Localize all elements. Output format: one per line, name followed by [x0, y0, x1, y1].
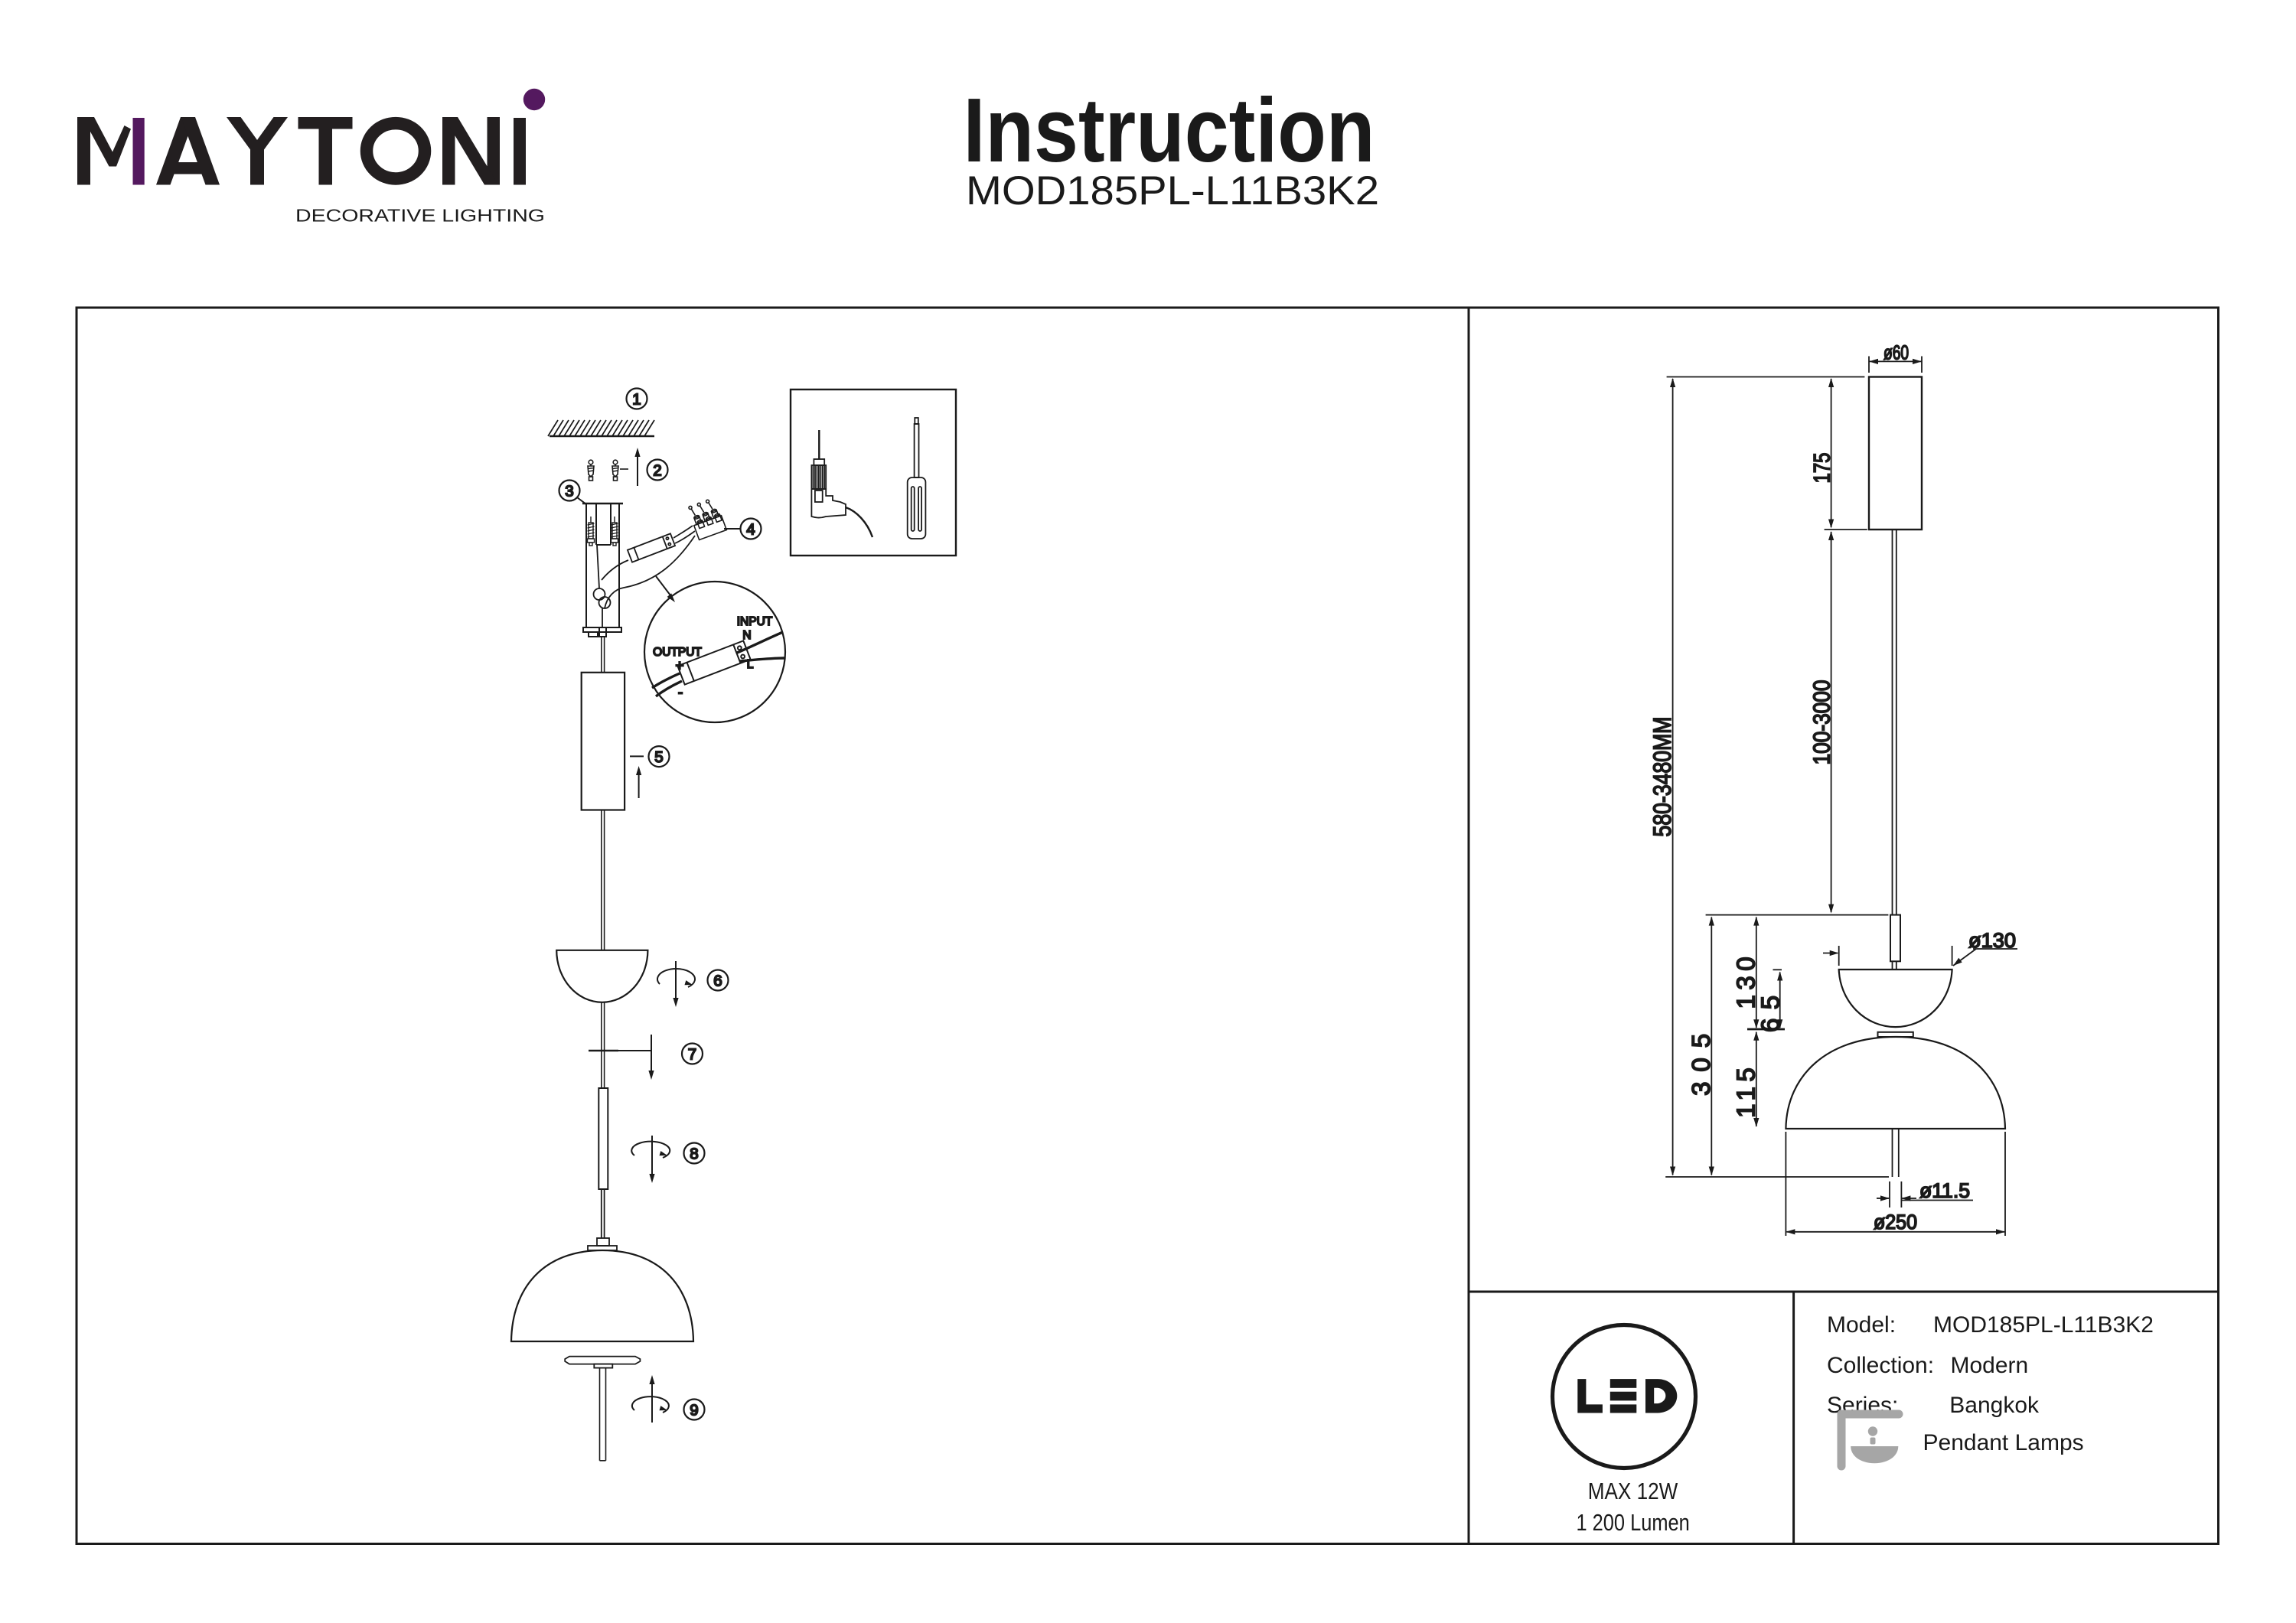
svg-text:2: 2: [653, 461, 661, 479]
svg-text:3: 3: [565, 482, 573, 500]
svg-text:65: 65: [1756, 987, 1785, 1032]
svg-text:Bangkok: Bangkok: [1949, 1393, 2040, 1418]
svg-text:N: N: [742, 629, 751, 642]
svg-text:6: 6: [713, 972, 722, 989]
svg-text:7: 7: [688, 1045, 696, 1063]
svg-text:1 200 Lumen: 1 200 Lumen: [1576, 1509, 1689, 1536]
svg-text:Instruction: Instruction: [964, 80, 1375, 181]
svg-text:305: 305: [1687, 1024, 1715, 1096]
svg-text:5: 5: [654, 748, 663, 766]
svg-text:100-3000: 100-3000: [1808, 680, 1835, 765]
svg-text:115: 115: [1731, 1063, 1760, 1118]
svg-text:9: 9: [690, 1401, 698, 1419]
svg-text:INPUT: INPUT: [737, 615, 773, 628]
svg-text:Modern: Modern: [1951, 1353, 2029, 1378]
svg-text:4: 4: [746, 520, 755, 538]
svg-text:580-3480MM: 580-3480MM: [1649, 717, 1676, 837]
svg-text:Model:: Model:: [1827, 1312, 1896, 1338]
svg-text:8: 8: [690, 1145, 698, 1162]
svg-text:DECORATIVE LIGHTING: DECORATIVE LIGHTING: [295, 206, 545, 226]
svg-text:ø60: ø60: [1883, 341, 1909, 364]
svg-text:L: L: [747, 658, 754, 671]
svg-text:ø250: ø250: [1874, 1211, 1917, 1234]
svg-text:OUTPUT: OUTPUT: [653, 646, 702, 659]
svg-text:1: 1: [632, 390, 641, 408]
svg-text:ø130: ø130: [1968, 929, 2016, 952]
svg-text:175: 175: [1810, 453, 1835, 484]
svg-text:+: +: [675, 658, 683, 674]
svg-text:ø11.5: ø11.5: [1919, 1179, 1970, 1202]
svg-text:MOD185PL-L11B3K2: MOD185PL-L11B3K2: [1933, 1312, 2154, 1338]
svg-text:MOD185PL-L11B3K2: MOD185PL-L11B3K2: [966, 168, 1379, 213]
svg-text:-: -: [678, 685, 683, 701]
svg-text:Collection:: Collection:: [1827, 1353, 1934, 1378]
svg-text:Pendant Lamps: Pendant Lamps: [1923, 1430, 2084, 1455]
svg-text:MAX 12W: MAX 12W: [1588, 1478, 1678, 1504]
